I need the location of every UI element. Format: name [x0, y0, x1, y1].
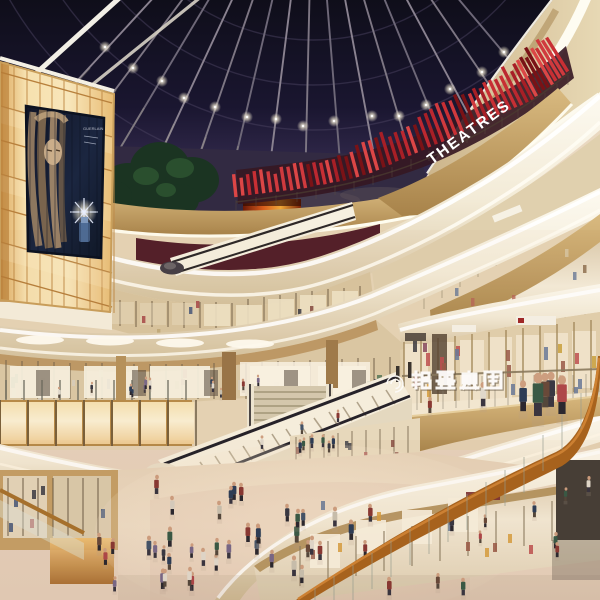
svg-text:GUERLAIN: GUERLAIN [83, 126, 104, 131]
